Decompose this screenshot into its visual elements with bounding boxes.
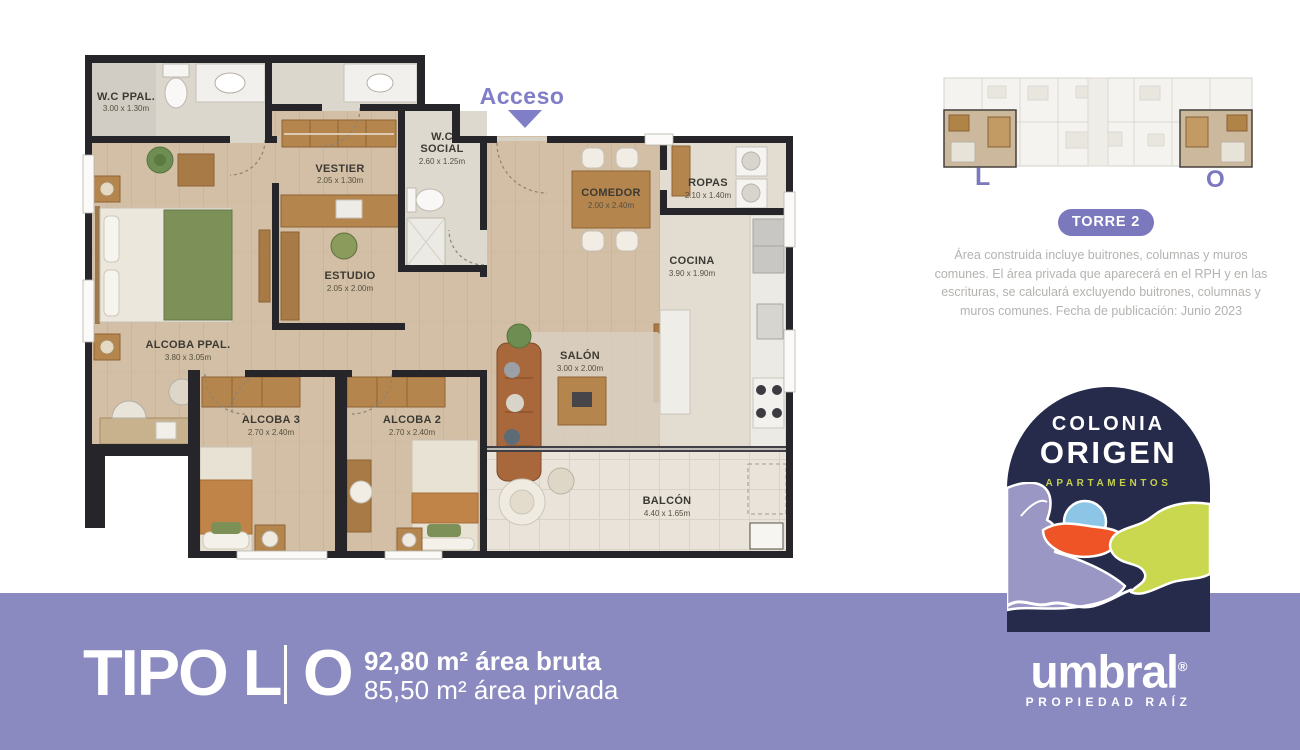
brand-origen: ORIGEN [1007,435,1210,471]
brand-colonia: COLONIA [1007,413,1210,436]
type-divider [284,645,287,704]
room-dims-ropas: 2.10 x 1.40m [685,191,732,200]
room-label-alcoba-2: ALCOBA 2 [383,414,441,426]
tower-unit-left-label: L [975,163,990,192]
tower-unit-O [1180,110,1252,167]
room-label-wc-social-1: W.C [431,131,453,143]
unit-type-label: TIPO L [83,640,280,706]
room-label-estudio: ESTUDIO [325,270,376,282]
room-dims-salon: 3.00 x 2.00m [557,364,604,373]
room-dims-wc-ppal: 3.00 x 1.30m [103,104,150,113]
room-dims-vestier: 2.05 x 1.30m [317,176,364,185]
tower-key-plan [938,72,1260,172]
room-dims-balcon: 4.40 x 1.65m [644,509,691,518]
room-label-salon: SALÓN [560,349,600,362]
tower-unit-L [944,110,1016,167]
developer-tagline: PROPIEDAD RAÍZ [1007,695,1210,709]
room-label-wc-ppal: W.C PPAL. [97,91,155,103]
room-dims-cocina: 3.90 x 1.90m [669,269,716,278]
room-label-wc-social-2: SOCIAL [420,143,463,155]
floor-plan: Acceso W.C PPAL. 3.00 x 1.30m VESTIER 2.… [60,40,810,590]
room-dims-wc-social: 2.60 x 1.25m [419,157,466,166]
unit-type-alt-label: O [303,640,354,706]
torre-badge: TORRE 2 [1058,209,1154,236]
room-dims-alcoba-2: 2.70 x 2.40m [389,428,436,437]
access-arrow-icon [508,110,542,128]
registered-mark: ® [1178,659,1187,674]
access-label: Acceso [480,83,565,109]
room-label-vestier: VESTIER [315,163,364,175]
wc-social-fixtures [407,188,445,266]
room-label-cocina: COCINA [669,255,714,267]
brand-landscape-art [1007,482,1210,632]
entry-threshold [497,137,547,141]
room-dims-alcoba-3: 2.70 x 2.40m [248,428,295,437]
brand-badge: COLONIA ORIGEN APARTAMENTOS [1007,387,1210,632]
room-dims-estudio: 2.05 x 2.00m [327,284,374,293]
room-dims-comedor: 2.00 x 2.40m [588,201,635,210]
room-label-alcoba-3: ALCOBA 3 [242,414,300,426]
vestier-closet [282,120,396,147]
area-private: 85,50 m² área privada [364,677,618,703]
room-label-ropas: ROPAS [688,177,728,189]
room-label-balcon: BALCÓN [643,494,692,507]
disclaimer-text: Área construida incluye buitrones, colum… [933,246,1269,320]
balcony-glass [487,446,786,452]
room-label-comedor: COMEDOR [581,187,641,199]
developer-logo: umbral® PROPIEDAD RAÍZ [1007,645,1210,709]
area-gross: 92,80 m² área bruta [364,648,618,674]
developer-name: umbral [1031,645,1178,697]
tower-unit-right-label: O [1206,166,1225,194]
room-label-alcoba-ppal: ALCOBA PPAL. [146,339,231,351]
room-dims-alcoba-ppal: 3.80 x 3.05m [165,353,212,362]
